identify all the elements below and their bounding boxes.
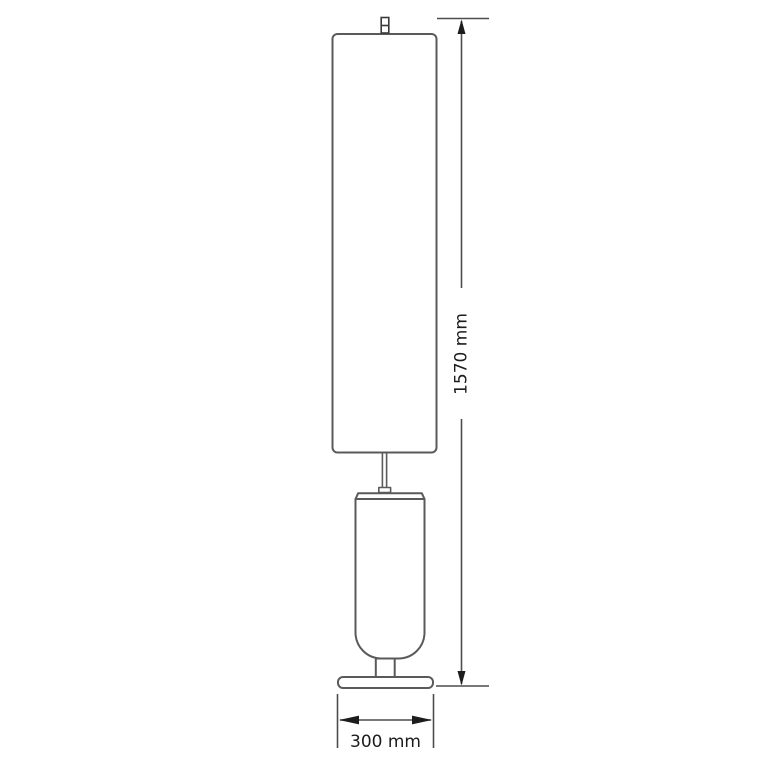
lamp-drawing-group: [333, 34, 437, 688]
base-disc: [338, 677, 433, 688]
base-neck: [376, 659, 395, 678]
finial-group: [381, 18, 389, 34]
stem-collar: [379, 488, 391, 493]
lamp-body-lid: [356, 493, 425, 499]
width-dimension-label: 300 mm: [350, 732, 421, 752]
lampshade: [333, 34, 437, 453]
height-dim-arrow-up-icon: [458, 20, 466, 35]
floor-lamp-technical-drawing: 1570 mm 300 mm: [0, 0, 770, 770]
lamp-body: [356, 499, 425, 659]
width-dim-arrow-left-icon: [339, 716, 359, 725]
technical-drawing-canvas: 1570 mm 300 mm: [0, 0, 770, 770]
height-dim-arrow-down-icon: [458, 671, 466, 686]
width-dim-arrow-right-icon: [412, 716, 432, 725]
height-dimension-label: 1570 mm: [451, 313, 471, 395]
